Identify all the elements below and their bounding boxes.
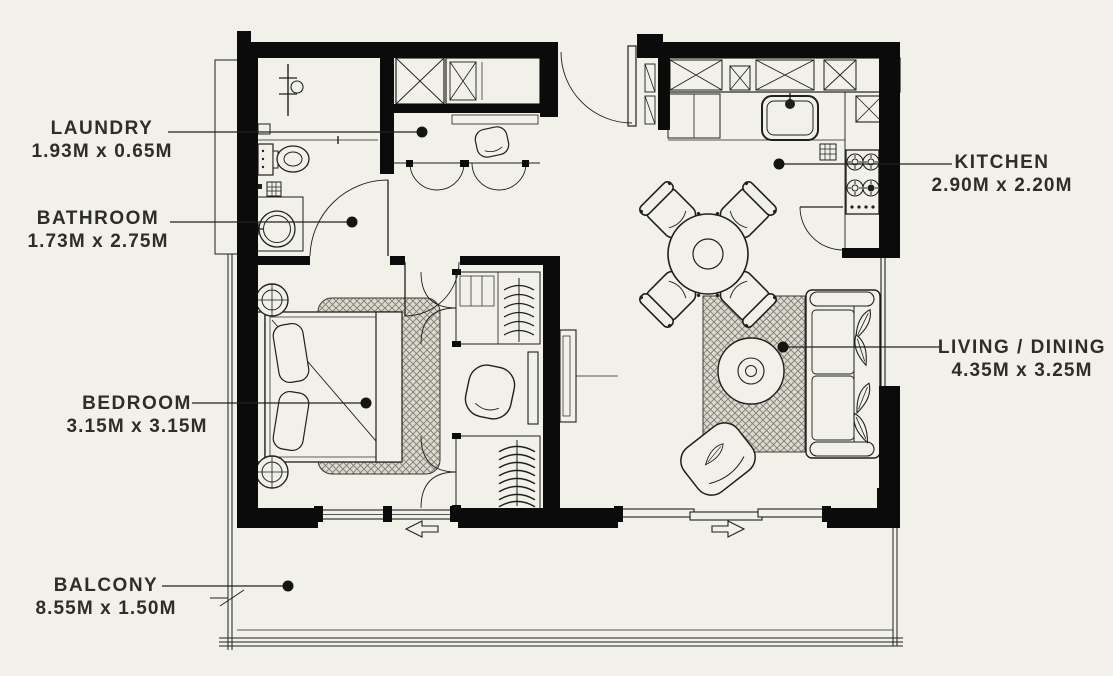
hob-vent-box	[820, 144, 836, 160]
bedroom-window	[314, 506, 459, 522]
label-balcony: BALCONY 8.55M x 1.50M	[30, 574, 182, 620]
bathroom-accessories	[254, 182, 281, 196]
kitchen-sink-icon	[762, 93, 818, 140]
room-size: 1.93M x 0.65M	[28, 140, 176, 163]
room-size: 8.55M x 1.50M	[30, 597, 182, 620]
room-size: 4.35M x 3.25M	[936, 359, 1108, 382]
room-name: BATHROOM	[22, 207, 174, 230]
room-name: BALCONY	[30, 574, 182, 597]
desk-and-chair	[462, 352, 538, 424]
dining-table-icon	[668, 214, 748, 294]
living-window	[881, 258, 885, 386]
tv-console	[560, 330, 618, 422]
oven-box	[856, 96, 882, 122]
kitchen-door	[800, 207, 843, 250]
label-bedroom: BEDROOM 3.15M x 3.15M	[58, 392, 216, 438]
stove-icon	[846, 150, 879, 214]
sofa-icon	[806, 290, 880, 458]
label-laundry: LAUNDRY 1.93M x 0.65M	[28, 117, 176, 163]
coffee-table-icon	[718, 338, 784, 404]
bed-icon	[256, 312, 402, 462]
room-name: LIVING / DINING	[936, 336, 1108, 359]
floorplan-canvas: LAUNDRY 1.93M x 0.65M BATHROOM 1.73M x 2…	[0, 0, 1113, 676]
label-kitchen: KITCHEN 2.90M x 2.20M	[922, 151, 1082, 197]
label-living-dining: LIVING / DINING 4.35M x 3.25M	[936, 336, 1108, 382]
room-size: 1.73M x 2.75M	[22, 230, 174, 253]
laundry-closet	[394, 58, 540, 190]
room-name: KITCHEN	[922, 151, 1082, 174]
sliding-door	[614, 506, 831, 522]
room-name: BEDROOM	[58, 392, 216, 415]
room-size: 2.90M x 2.20M	[922, 174, 1082, 197]
label-bathroom: BATHROOM 1.73M x 2.75M	[22, 207, 174, 253]
vanity-sink-icon	[251, 197, 303, 251]
room-size: 3.15M x 3.15M	[58, 415, 216, 438]
room-name: LAUNDRY	[28, 117, 176, 140]
